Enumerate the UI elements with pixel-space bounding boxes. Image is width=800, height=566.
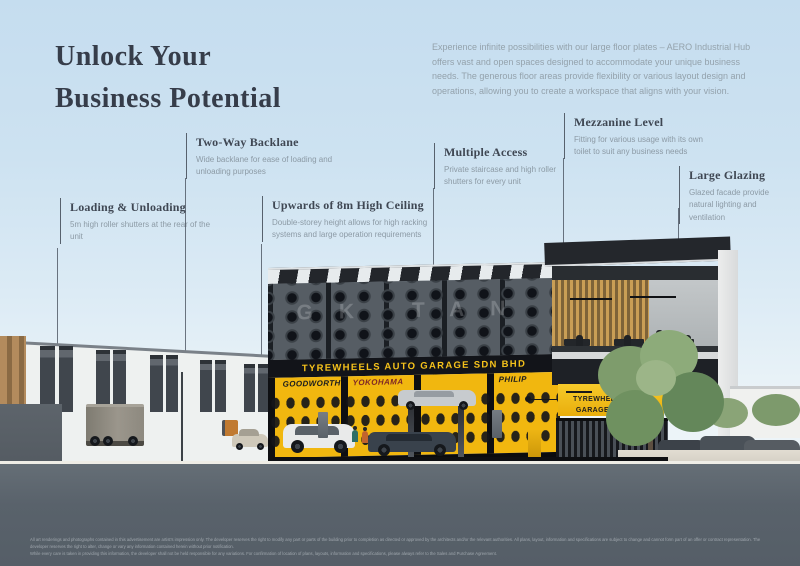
office-worker — [576, 335, 583, 346]
car-wheel — [334, 440, 347, 453]
callout-title: Loading & Unloading — [70, 200, 212, 215]
roller-shutter — [166, 355, 178, 412]
car-wheel — [406, 401, 415, 410]
roller-shutter — [244, 364, 255, 412]
sign-leader-line — [528, 399, 558, 400]
disclaimer-line1: All art renderings and photographs conta… — [30, 536, 770, 550]
disclaimer-line2: While every care is taken in providing t… — [30, 550, 770, 557]
yellow-vending-kiosk — [528, 430, 541, 460]
roller-shutter — [150, 355, 163, 412]
callout-title: Upwards of 8m High Ceiling — [272, 198, 434, 213]
car-lift-post — [458, 404, 464, 462]
person-figure — [362, 431, 368, 443]
box-truck — [86, 404, 144, 446]
car-wheel — [291, 440, 304, 453]
callout-mezzanine-level: Mezzanine Level Fitting for various usag… — [564, 113, 716, 159]
page-title-line2: Business Potential — [55, 78, 281, 120]
foreground-wall — [0, 404, 62, 466]
main-sign-text: TYREWHEELS AUTO GARAGE SDN BHD — [302, 358, 526, 374]
page-title-line1: Unlock Your — [55, 36, 281, 78]
legal-disclaimer: All art renderings and photographs conta… — [30, 536, 770, 557]
roller-shutter — [215, 360, 226, 412]
pendant-light — [570, 298, 612, 300]
callout-body: Glazed facade provide natural lighting a… — [689, 187, 791, 224]
mezzanine-office-interior — [552, 266, 720, 354]
brand-logo: YOKOHAMA — [353, 377, 404, 387]
page-title: Unlock Your Business Potential — [55, 36, 281, 120]
callout-body: 5m high roller shutters at the rear of t… — [70, 219, 212, 244]
truck-wheel — [128, 436, 138, 446]
callout-body: Fitting for various usage with its own t… — [574, 134, 716, 159]
callout-high-ceiling: Upwards of 8m High Ceiling Double-storey… — [262, 196, 434, 242]
tree-foliage — [636, 360, 676, 396]
car-on-lift — [398, 390, 476, 406]
roller-shutter — [40, 346, 55, 412]
car-wheel — [434, 444, 446, 456]
lamp-post — [181, 372, 183, 468]
callout-title: Mezzanine Level — [574, 115, 716, 130]
brochure-page: Unlock Your Business Potential Experienc… — [0, 0, 800, 566]
roller-shutter — [96, 350, 110, 412]
callout-title: Large Glazing — [689, 168, 791, 183]
callout-title: Two-Way Backlane — [196, 135, 336, 150]
person-figure — [352, 430, 358, 442]
roof-slab — [544, 237, 731, 267]
background-car — [232, 434, 268, 447]
truck-wheel — [90, 436, 100, 446]
roller-shutter — [59, 346, 73, 412]
sign-leader-dot — [525, 396, 531, 402]
callout-loading-unloading: Loading & Unloading 5m high roller shutt… — [60, 198, 212, 244]
callout-large-glazing: Large Glazing Glazed facade provide natu… — [679, 166, 791, 224]
brand-logo: PHILIP — [499, 375, 527, 385]
sign-rule — [566, 391, 592, 393]
office-worker — [624, 335, 631, 346]
pendant-light — [630, 296, 676, 298]
truck-wheel — [103, 436, 113, 446]
service-kiosk — [492, 410, 502, 438]
intro-paragraph: Experience infinite possibilities with o… — [432, 40, 762, 98]
wood-slat-wall — [552, 280, 649, 346]
car-wheel — [459, 401, 468, 410]
callout-body: Private staircase and high roller shutte… — [444, 164, 586, 189]
roller-shutter — [258, 364, 268, 412]
car-wheel — [236, 443, 243, 450]
roller-shutter — [113, 350, 126, 412]
callout-body: Wide backlane for ease of loading and un… — [196, 154, 336, 179]
tree — [752, 394, 800, 426]
dark-sedan — [368, 432, 456, 452]
tree-foliage — [606, 390, 664, 446]
car-wheel — [257, 443, 264, 450]
callout-body: Double-storey height allows for high rac… — [272, 217, 434, 242]
roller-shutter — [200, 360, 212, 412]
car-wheel — [378, 444, 390, 456]
service-kiosk — [318, 412, 328, 438]
callout-two-way-backlane: Two-Way Backlane Wide backlane for ease … — [186, 133, 336, 179]
brand-logo: GOODWORTH — [283, 378, 341, 388]
